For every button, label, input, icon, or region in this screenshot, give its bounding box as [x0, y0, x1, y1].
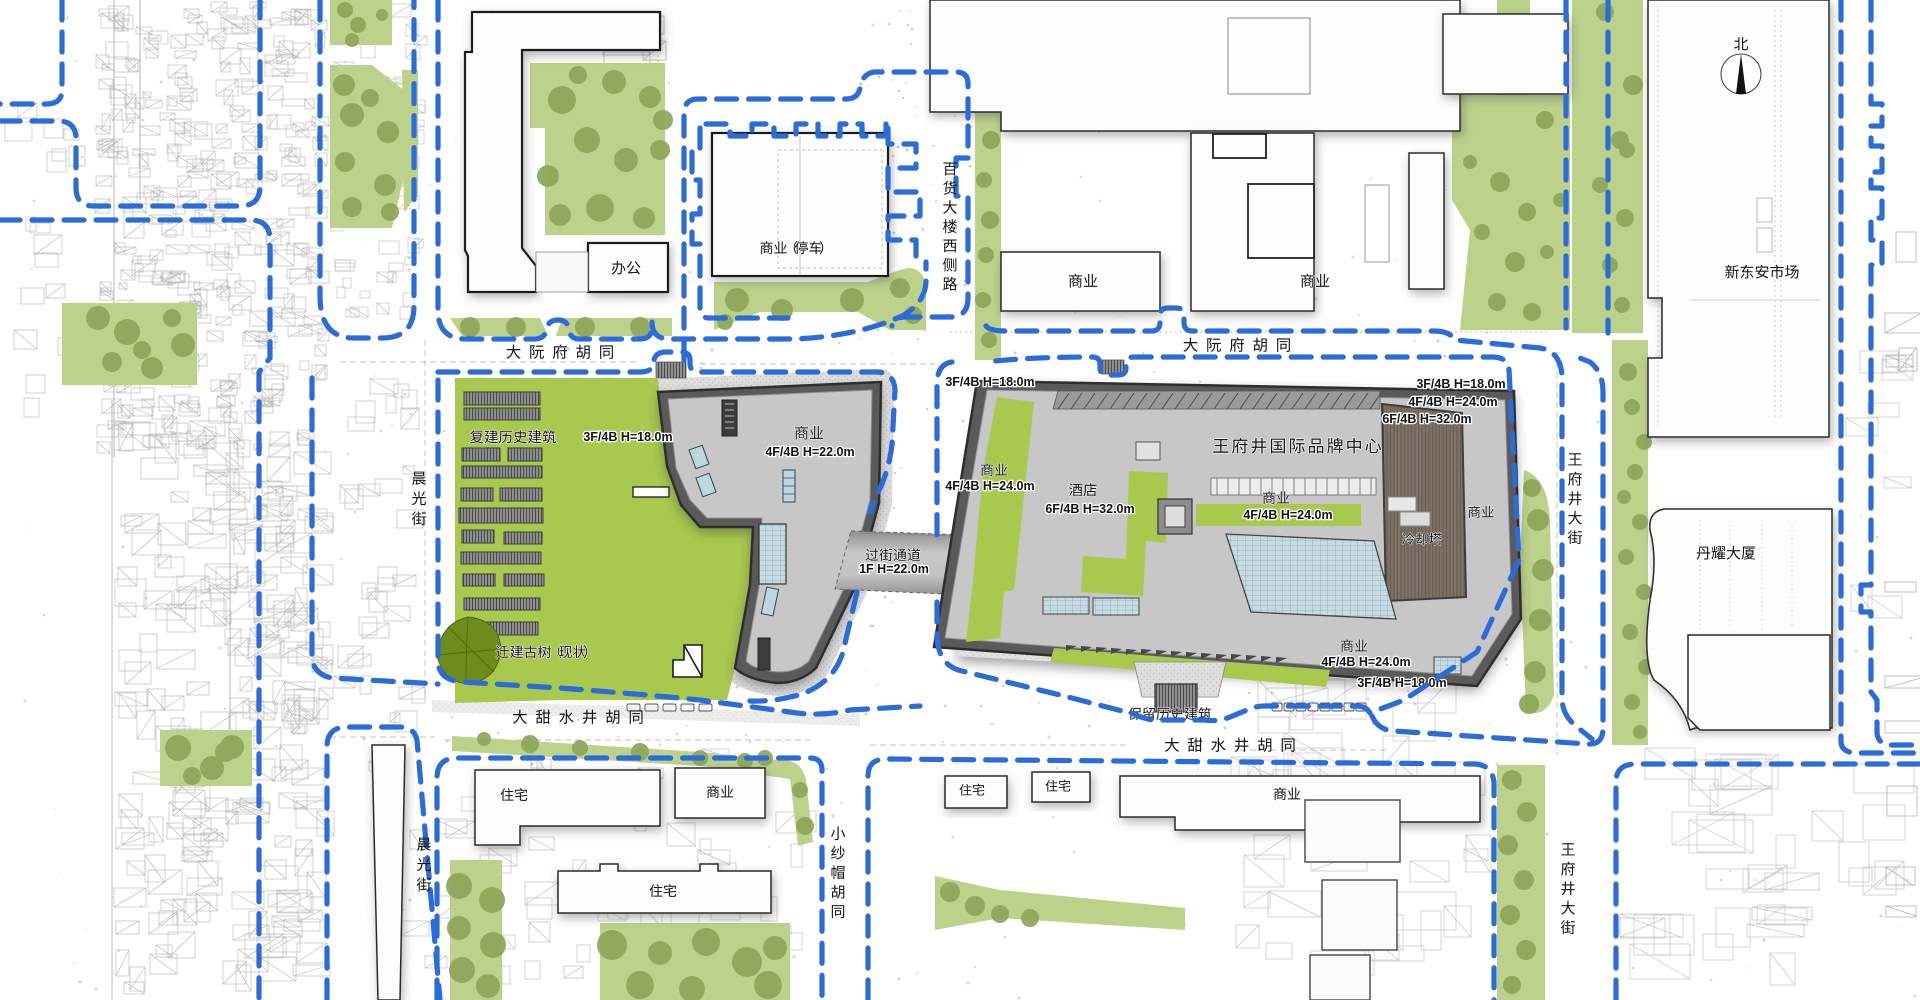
svg-text:4F/4B H=24.0m: 4F/4B H=24.0m: [1243, 508, 1332, 522]
svg-text:6F/4B H=32.0m: 6F/4B H=32.0m: [1382, 412, 1471, 426]
svg-text:4F/4B H=22.0m: 4F/4B H=22.0m: [765, 445, 854, 459]
svg-text:6F/4B H=32.0m: 6F/4B H=32.0m: [1045, 502, 1134, 516]
svg-text:3F/4B H=18.0m: 3F/4B H=18.0m: [1416, 377, 1505, 391]
svg-text:3F/4B H=18.0m: 3F/4B H=18.0m: [945, 375, 1034, 389]
svg-text:4F/4B H=24.0m: 4F/4B H=24.0m: [945, 479, 1034, 493]
svg-text:4F/4B H=24.0m: 4F/4B H=24.0m: [1321, 655, 1410, 669]
svg-text:3F/4B H=18.0m: 3F/4B H=18.0m: [1357, 676, 1446, 690]
svg-text:3F/4B H=18.0m: 3F/4B H=18.0m: [583, 430, 672, 444]
svg-text:4F/4B H=24.0m: 4F/4B H=24.0m: [1408, 395, 1497, 409]
svg-text:1F H=22.0m: 1F H=22.0m: [859, 562, 929, 576]
